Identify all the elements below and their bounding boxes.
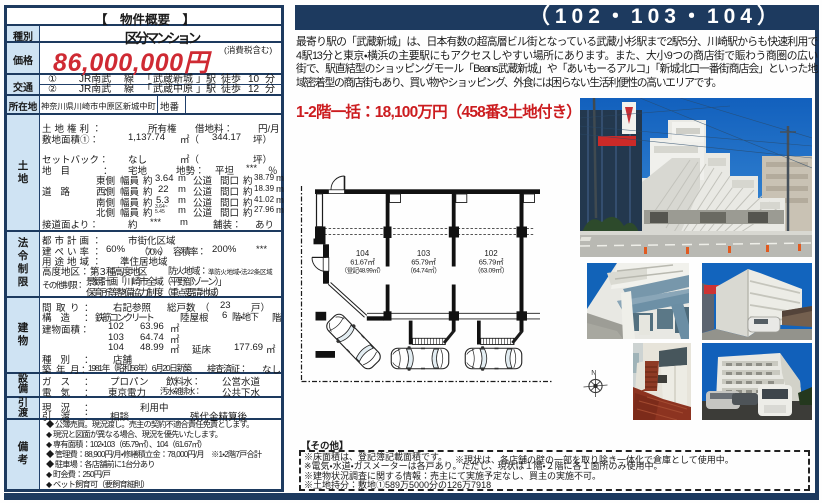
svg-text:（64.74㎡）: （64.74㎡） — [406, 266, 440, 275]
svg-text:（登記48.99㎡）: （登記48.99㎡） — [341, 266, 384, 275]
svg-text:65.79㎡: 65.79㎡ — [411, 258, 436, 267]
svg-text:61.67㎡: 61.67㎡ — [350, 258, 375, 267]
svg-text:（63.09㎡）: （63.09㎡） — [474, 266, 508, 275]
svg-text:65.79㎡: 65.79㎡ — [479, 258, 504, 267]
